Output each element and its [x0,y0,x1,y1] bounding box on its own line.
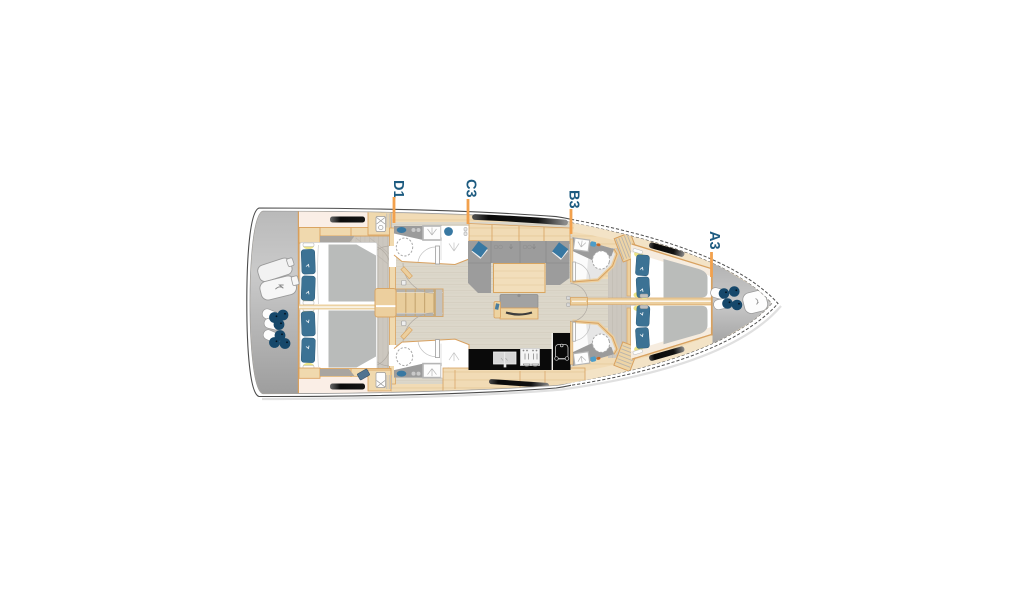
svg-text:D1: D1 [390,180,406,199]
svg-text:C3: C3 [463,179,479,198]
svg-text:B3: B3 [566,190,582,209]
svg-text:A3: A3 [706,231,722,250]
